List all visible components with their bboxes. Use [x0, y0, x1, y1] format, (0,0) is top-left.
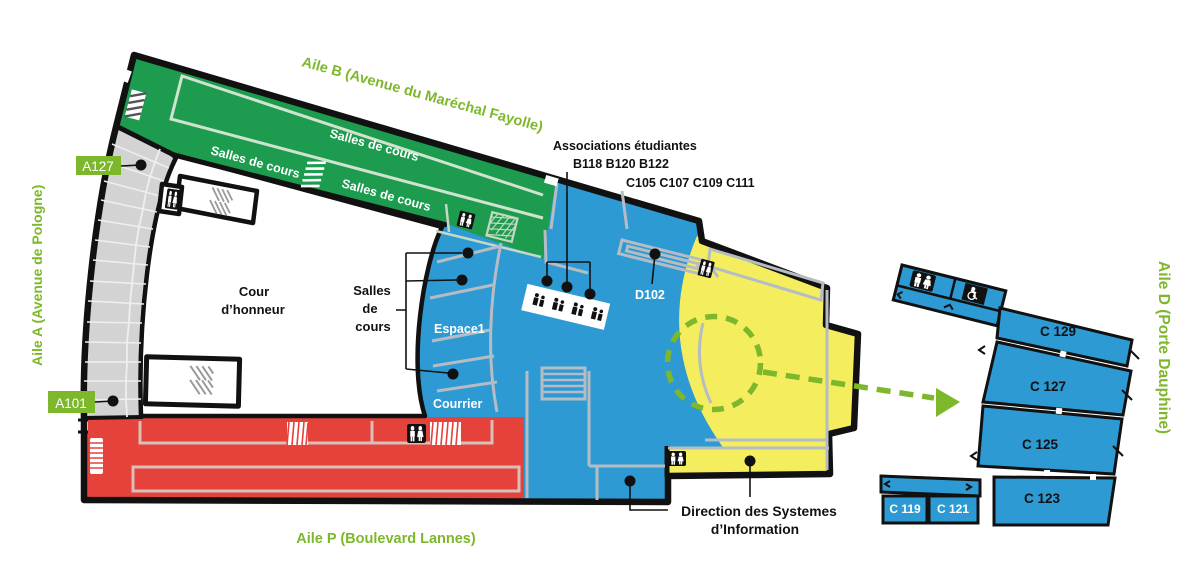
svg-text:Aile D (Porte Dauphine): Aile D (Porte Dauphine) [1155, 261, 1172, 434]
svg-text:Associations étudiantes: Associations étudiantes [553, 139, 697, 153]
svg-text:d’Information: d’Information [711, 522, 799, 537]
svg-text:C 119: C 119 [889, 502, 921, 516]
svg-text:C 123: C 123 [1024, 491, 1061, 506]
svg-text:Direction des Systemes: Direction des Systemes [681, 504, 837, 519]
svg-text:C 125: C 125 [1022, 437, 1059, 452]
svg-text:Cour: Cour [239, 284, 269, 299]
svg-text:D102: D102 [635, 288, 665, 302]
svg-text:C 129: C 129 [1040, 324, 1076, 339]
svg-text:Aile P (Boulevard Lannes): Aile P (Boulevard Lannes) [296, 531, 476, 547]
svg-text:Courrier: Courrier [433, 397, 482, 411]
svg-text:Espace1: Espace1 [434, 322, 485, 336]
svg-text:C105 C107 C109 C111: C105 C107 C109 C111 [626, 176, 755, 190]
svg-text:Aile A (Avenue de Pologne): Aile A (Avenue de Pologne) [29, 185, 45, 366]
svg-text:B118 B120 B122: B118 B120 B122 [573, 157, 669, 171]
svg-text:de: de [362, 301, 377, 316]
svg-text:A101: A101 [55, 396, 87, 411]
svg-text:C 121: C 121 [937, 502, 969, 516]
svg-text:C 127: C 127 [1030, 379, 1066, 394]
svg-text:cours: cours [355, 319, 390, 334]
svg-text:d’honneur: d’honneur [221, 302, 285, 317]
svg-text:Salles: Salles [353, 283, 391, 298]
svg-text:A127: A127 [82, 159, 114, 174]
